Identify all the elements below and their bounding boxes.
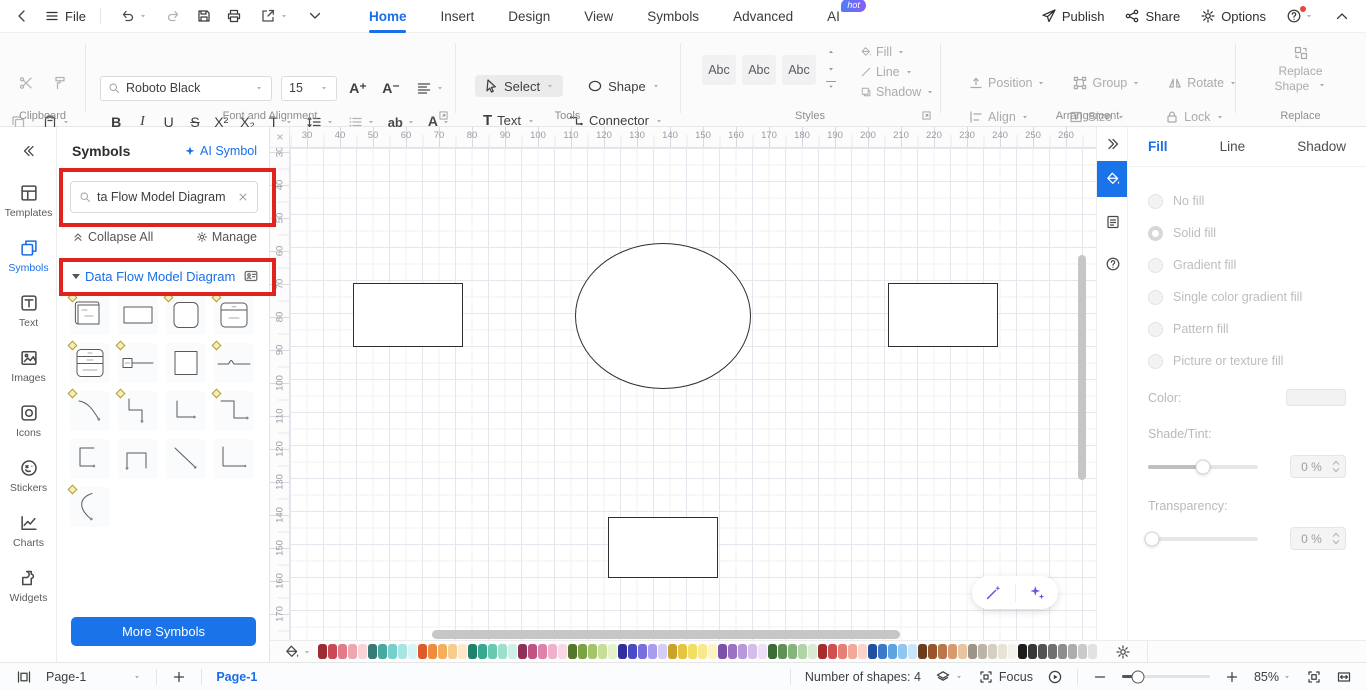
tab-design[interactable]: Design <box>508 0 550 33</box>
export-button[interactable] <box>256 3 293 29</box>
fill-option-pattern-fill[interactable]: Pattern fill <box>1148 313 1346 345</box>
color-swatch[interactable] <box>458 644 467 659</box>
transparency-slider[interactable] <box>1148 537 1258 541</box>
tab-ai[interactable]: AIhot <box>827 0 840 33</box>
ai-sparkles-button[interactable] <box>1027 583 1046 602</box>
divider <box>1147 641 1148 663</box>
radio-button[interactable] <box>1148 226 1163 241</box>
h-ruler-tick: 100 <box>530 130 546 141</box>
styles-scroll-down-icon[interactable] <box>826 64 836 74</box>
color-swatch[interactable] <box>878 644 887 659</box>
color-swatch[interactable] <box>358 644 367 659</box>
radio-button[interactable] <box>1148 354 1163 369</box>
sidebar-item-icons[interactable]: Icons <box>0 393 57 448</box>
color-swatch[interactable] <box>938 644 947 659</box>
color-swatch[interactable] <box>398 644 407 659</box>
position-label: Position <box>988 76 1032 90</box>
color-swatches <box>318 644 1097 659</box>
page-select-value: Page-1 <box>46 670 86 684</box>
canvas[interactable]: 3040506070809010011012013014015016017018… <box>270 127 1096 640</box>
format-painter-button[interactable] <box>52 75 68 91</box>
select-tool-button[interactable]: Select <box>475 75 563 97</box>
collapse-all-button[interactable]: Collapse All <box>72 230 153 244</box>
color-swatch[interactable] <box>378 644 387 659</box>
color-swatch[interactable] <box>1088 644 1097 659</box>
sidebar-item-widgets[interactable]: Widgets <box>0 558 57 613</box>
symbol-u-arrow[interactable] <box>118 439 158 479</box>
color-swatch[interactable] <box>1008 644 1017 659</box>
font-size-select[interactable]: 15 <box>281 76 337 101</box>
rotate-label: Rotate <box>1187 76 1224 90</box>
tools-section-label: Tools <box>455 110 680 122</box>
style-preset-2[interactable]: Abc <box>742 55 776 85</box>
select-label: Select <box>504 79 540 94</box>
help-button[interactable] <box>1286 8 1314 24</box>
color-swatch[interactable] <box>988 644 997 659</box>
tab-view[interactable]: View <box>584 0 613 33</box>
options-label: Options <box>1221 9 1266 24</box>
fill-option-picture-or-texture-fill[interactable]: Picture or texture fill <box>1148 345 1346 377</box>
color-swatch[interactable] <box>778 644 787 659</box>
color-swatch[interactable] <box>548 644 557 659</box>
color-swatch[interactable] <box>818 644 827 659</box>
text-align-button[interactable] <box>412 75 449 101</box>
page-panel-icon[interactable] <box>16 669 32 685</box>
symbol-z-arrow[interactable] <box>214 391 254 431</box>
magic-wand-button[interactable] <box>984 583 1003 602</box>
quick-fill-button[interactable] <box>284 644 312 660</box>
divider <box>156 669 157 685</box>
symbol-search-input[interactable] <box>97 190 231 204</box>
canvas-shape-ellipse-2[interactable] <box>575 243 751 389</box>
zoom-out-button[interactable] <box>1092 669 1108 685</box>
sidebar-item-label: Charts <box>13 537 44 549</box>
color-swatch[interactable] <box>708 644 717 659</box>
redo-button[interactable] <box>166 8 182 24</box>
templates-icon <box>19 183 39 203</box>
collapse-all-label: Collapse All <box>88 230 153 244</box>
sidebar-item-label: Images <box>11 372 45 384</box>
color-swatch[interactable] <box>648 644 657 659</box>
panel-tabs: FillLineShadow <box>1128 127 1366 167</box>
help-caret-icon <box>1304 11 1314 21</box>
tab-label: View <box>584 9 613 24</box>
color-swatch[interactable] <box>418 644 427 659</box>
color-swatch[interactable] <box>558 644 567 659</box>
color-swatch[interactable] <box>798 644 807 659</box>
radio-button[interactable] <box>1148 258 1163 273</box>
palette-settings-gear-icon[interactable] <box>1115 644 1131 660</box>
color-swatch[interactable] <box>978 644 987 659</box>
search-icon <box>108 82 120 94</box>
tab-label: Symbols <box>647 9 699 24</box>
cut-button[interactable] <box>18 75 34 91</box>
font-section: Roboto Black 15 A⁺ A⁻ B I U S X <box>85 33 455 127</box>
ai-symbol-label: AI Symbol <box>200 144 257 158</box>
color-swatch[interactable] <box>498 644 507 659</box>
shade-tint-value: 0 % <box>1291 460 1332 474</box>
symbol-roundsq[interactable] <box>166 295 206 335</box>
color-swatch[interactable] <box>768 644 777 659</box>
save-button[interactable] <box>196 8 212 24</box>
text-tool-icon <box>19 293 39 313</box>
back-chevron-icon[interactable] <box>14 8 30 24</box>
position-caret-icon <box>1036 78 1046 88</box>
options-button[interactable]: Options <box>1200 8 1266 24</box>
fill-option-label: Pattern fill <box>1173 322 1229 336</box>
color-swatch[interactable] <box>688 644 697 659</box>
h-ruler-tick: 30 <box>302 130 313 141</box>
horizontal-scrollbar[interactable] <box>432 630 900 639</box>
group-icon <box>1072 75 1088 91</box>
color-swatch[interactable] <box>1038 644 1047 659</box>
sidebar-item-label: Widgets <box>10 592 48 604</box>
page-tab-active[interactable]: Page-1 <box>216 670 257 684</box>
styles-dialog-launcher-icon[interactable] <box>921 110 932 121</box>
transparency-down-icon[interactable] <box>1332 539 1340 545</box>
transparency-slider-handle[interactable] <box>1145 531 1160 546</box>
replace-section: Replace Shape Replace <box>1235 33 1366 127</box>
fill-label: Fill <box>876 45 892 59</box>
h-ruler-tick: 190 <box>827 130 843 141</box>
tab-label: Insert <box>440 9 474 24</box>
symbol-tagline[interactable] <box>118 343 158 383</box>
color-swatch[interactable] <box>1028 644 1037 659</box>
color-swatch[interactable] <box>608 644 617 659</box>
symbol-diag-line[interactable] <box>166 439 206 479</box>
zoom-slider[interactable] <box>1122 675 1210 678</box>
color-swatch[interactable] <box>718 644 727 659</box>
symbol-library-title: Data Flow Model Diagram <box>85 269 238 284</box>
rail-items: TemplatesSymbolsTextImagesIconsStickersC… <box>0 173 57 613</box>
tab-advanced[interactable]: Advanced <box>733 0 793 33</box>
color-swatch[interactable] <box>638 644 647 659</box>
tab-label: AI <box>827 9 840 24</box>
styles-scroll-up-icon[interactable] <box>826 47 836 57</box>
fill-option-label: No fill <box>1173 194 1204 208</box>
print-button[interactable] <box>226 8 242 24</box>
symbol-entity1[interactable] <box>214 295 254 335</box>
symbol-square[interactable] <box>166 343 206 383</box>
tab-home[interactable]: Home <box>369 0 407 33</box>
shade-down-icon[interactable] <box>1332 467 1340 473</box>
font-size-value: 15 <box>289 81 313 95</box>
color-swatch[interactable] <box>518 644 527 659</box>
symbol-search-box <box>70 181 258 213</box>
color-swatch[interactable] <box>758 644 767 659</box>
font-family-select[interactable]: Roboto Black <box>100 76 272 101</box>
group-label: Group <box>1092 76 1127 90</box>
color-swatch[interactable] <box>1018 644 1027 659</box>
fill-option-solid-fill[interactable]: Solid fill <box>1148 217 1346 249</box>
fit-width-button[interactable] <box>1336 669 1352 685</box>
symbol-elbow-arrow[interactable] <box>118 391 158 431</box>
color-swatch[interactable] <box>588 644 597 659</box>
color-swatch[interactable] <box>1058 644 1067 659</box>
color-swatch[interactable] <box>728 644 737 659</box>
page-select-dropdown[interactable]: Page-1 <box>46 670 142 684</box>
fill-panel-button[interactable] <box>1097 161 1128 197</box>
color-swatch[interactable] <box>438 644 447 659</box>
color-swatch[interactable] <box>538 644 547 659</box>
group-caret-icon <box>1131 78 1141 88</box>
rotate-dropdown[interactable]: Rotate <box>1167 75 1238 91</box>
section-expand-triangle-icon <box>72 274 80 279</box>
styles-section-label: Styles <box>680 110 940 122</box>
sidebar-item-text[interactable]: Text <box>0 283 57 338</box>
vertical-scrollbar[interactable] <box>1078 255 1086 480</box>
canvas-shape-rect-1[interactable] <box>353 283 463 347</box>
h-ruler-tick: 230 <box>959 130 975 141</box>
color-swatch[interactable] <box>338 644 347 659</box>
shade-up-icon[interactable] <box>1332 460 1340 466</box>
radio-button[interactable] <box>1148 322 1163 337</box>
align-text-icon <box>416 80 432 96</box>
line-label: Line <box>876 65 900 79</box>
sidebar-item-images[interactable]: Images <box>0 338 57 393</box>
sidebar-item-symbols[interactable]: Symbols <box>0 228 57 283</box>
color-swatch[interactable] <box>388 644 397 659</box>
tab-label: Design <box>508 9 550 24</box>
color-swatch[interactable] <box>348 644 357 659</box>
focus-button[interactable]: Focus <box>978 669 1033 685</box>
radio-button[interactable] <box>1148 194 1163 209</box>
color-swatch[interactable] <box>898 644 907 659</box>
symbol-curve-arrow[interactable] <box>70 391 110 431</box>
symbol-wave[interactable] <box>214 343 254 383</box>
presentation-play-button[interactable] <box>1047 669 1063 685</box>
color-swatch[interactable] <box>468 644 477 659</box>
color-swatch[interactable] <box>1068 644 1077 659</box>
style-preset-1[interactable]: Abc <box>702 55 736 85</box>
main-tabs: HomeInsertDesignViewSymbolsAdvancedAIhot <box>369 0 840 33</box>
tab-symbols[interactable]: Symbols <box>647 0 699 33</box>
style-preset-3[interactable]: Abc <box>782 55 816 85</box>
color-swatch[interactable] <box>678 644 687 659</box>
color-swatch[interactable] <box>788 644 797 659</box>
color-swatch[interactable] <box>918 644 927 659</box>
more-symbols-button[interactable]: More Symbols <box>71 617 256 646</box>
titlebar: File HomeInsertDesignViewSymbolsAdvanced… <box>0 0 1366 33</box>
color-swatch[interactable] <box>408 644 417 659</box>
color-swatch[interactable] <box>1286 389 1346 406</box>
shade-tint-spinner[interactable]: 0 % <box>1290 455 1346 478</box>
panel-tab-fill[interactable]: Fill <box>1148 139 1168 154</box>
share-label: Share <box>1145 9 1180 24</box>
library-card-icon[interactable] <box>243 268 259 284</box>
v-ruler-tick: 70 <box>275 279 286 290</box>
shade-slider-handle[interactable] <box>1196 459 1211 474</box>
color-swatch[interactable] <box>1048 644 1057 659</box>
tab-insert[interactable]: Insert <box>440 0 474 33</box>
manage-button[interactable]: Manage <box>196 230 257 244</box>
sidebar-item-label: Text <box>19 317 38 329</box>
undo-caret-icon <box>138 11 148 21</box>
color-swatch[interactable] <box>528 644 537 659</box>
symbol-process3d[interactable] <box>70 295 110 335</box>
color-swatch[interactable] <box>808 644 817 659</box>
sparkle-icon <box>184 145 196 157</box>
symbol-arc[interactable] <box>70 487 110 527</box>
page-settings-button[interactable] <box>1097 205 1128 239</box>
sidebar-item-stickers[interactable]: Stickers <box>0 448 57 503</box>
file-menu[interactable]: File <box>44 8 86 24</box>
increase-font-button[interactable]: A⁺ <box>346 76 370 100</box>
zoom-slider-handle[interactable] <box>1131 670 1144 683</box>
clear-search-icon[interactable] <box>237 191 249 203</box>
tab-label: Advanced <box>733 9 793 24</box>
divider <box>790 669 791 685</box>
images-icon <box>19 348 39 368</box>
radio-button[interactable] <box>1148 290 1163 305</box>
color-swatch[interactable] <box>748 644 757 659</box>
color-swatch[interactable] <box>738 644 747 659</box>
v-ruler-tick: 90 <box>275 345 286 356</box>
color-swatch[interactable] <box>828 644 837 659</box>
color-swatch[interactable] <box>598 644 607 659</box>
panel-help-button[interactable] <box>1097 247 1128 281</box>
publish-button[interactable]: Publish <box>1041 8 1105 24</box>
color-swatch[interactable] <box>488 644 497 659</box>
color-swatch[interactable] <box>578 644 587 659</box>
share-button[interactable]: Share <box>1124 8 1180 24</box>
shadow-dropdown[interactable]: Shadow <box>860 85 935 99</box>
color-swatch[interactable] <box>698 644 707 659</box>
replace-shape-button[interactable]: Replace Shape <box>1235 45 1366 94</box>
widgets-icon <box>19 568 39 588</box>
styles-more-icon[interactable] <box>826 81 836 91</box>
zoom-level-dropdown[interactable]: 85% <box>1254 670 1292 684</box>
color-swatch[interactable] <box>958 644 967 659</box>
color-swatch[interactable] <box>508 644 517 659</box>
undo-button[interactable] <box>115 3 152 29</box>
collapse-ribbon-icon[interactable] <box>307 8 323 24</box>
clipboard-section-label: Clipboard <box>0 110 85 122</box>
color-swatch[interactable] <box>668 644 677 659</box>
position-dropdown[interactable]: Position <box>968 75 1046 91</box>
layers-button[interactable] <box>935 669 964 685</box>
fill-option-gradient-fill[interactable]: Gradient fill <box>1148 249 1346 281</box>
font-family-caret-icon <box>254 83 264 93</box>
left-rail: TemplatesSymbolsTextImagesIconsStickersC… <box>0 127 57 662</box>
color-swatch[interactable] <box>998 644 1007 659</box>
color-swatch[interactable] <box>568 644 577 659</box>
group-dropdown[interactable]: Group <box>1072 75 1141 91</box>
v-ruler-tick: 100 <box>275 375 286 391</box>
shadow-label: Shadow <box>876 85 921 99</box>
panel-tab-shadow[interactable]: Shadow <box>1297 139 1346 154</box>
color-swatch[interactable] <box>848 644 857 659</box>
h-ruler-tick: 180 <box>794 130 810 141</box>
export-icon <box>260 8 276 24</box>
v-ruler-tick: 170 <box>275 606 286 622</box>
add-page-button[interactable] <box>171 669 187 685</box>
zoom-level-value: 85% <box>1254 670 1279 684</box>
quick-fill-caret-icon <box>302 647 312 657</box>
ai-symbol-link[interactable]: AI Symbol <box>184 144 257 158</box>
fill-option-no-fill[interactable]: No fill <box>1148 185 1346 217</box>
symbol-rect[interactable] <box>118 295 158 335</box>
sidebar-item-templates[interactable]: Templates <box>0 173 57 228</box>
symbol-entity2[interactable] <box>70 343 110 383</box>
color-swatch[interactable] <box>318 644 327 659</box>
color-palette-bar <box>270 640 1366 662</box>
sidebar-item-charts[interactable]: Charts <box>0 503 57 558</box>
v-ruler-tick: 110 <box>275 408 286 423</box>
shape-tool-button[interactable]: Shape <box>579 75 669 97</box>
h-ruler-tick: 130 <box>629 130 645 141</box>
color-swatch[interactable] <box>628 644 637 659</box>
replace-caret-icon <box>1317 80 1327 90</box>
v-ruler-tick: 30 <box>275 147 286 158</box>
sidebar-item-label: Symbols <box>8 262 48 274</box>
h-ruler-tick: 80 <box>467 130 478 141</box>
zoom-in-button[interactable] <box>1224 669 1240 685</box>
transparency-spinner[interactable]: 0 % <box>1290 527 1346 550</box>
color-swatch[interactable] <box>868 644 877 659</box>
shade-tint-slider[interactable] <box>1148 465 1258 469</box>
decrease-font-button[interactable]: A⁻ <box>379 76 403 100</box>
symbol-library-header[interactable]: Data Flow Model Diagram <box>72 268 259 284</box>
line-dropdown[interactable]: Line <box>860 65 935 79</box>
transparency-up-icon[interactable] <box>1332 532 1340 538</box>
color-swatch[interactable] <box>968 644 977 659</box>
expand-panel-button[interactable] <box>1097 127 1128 161</box>
publish-icon <box>1041 8 1057 24</box>
shape-count: Number of shapes: 4 <box>805 670 921 684</box>
fill-option-single-color-gradient-fill[interactable]: Single color gradient fill <box>1148 281 1346 313</box>
h-ruler-tick: 210 <box>893 130 909 141</box>
color-swatch[interactable] <box>908 644 917 659</box>
color-swatch[interactable] <box>948 644 957 659</box>
color-swatch[interactable] <box>838 644 847 659</box>
help-circle-icon <box>1105 256 1121 272</box>
canvas-shape-rect-4[interactable] <box>608 517 718 578</box>
color-swatch[interactable] <box>428 644 437 659</box>
fit-screen-button[interactable] <box>1306 669 1322 685</box>
color-swatch[interactable] <box>478 644 487 659</box>
symbol-l-arrow[interactable] <box>166 391 206 431</box>
collapse-titlebar-icon[interactable] <box>1334 8 1350 24</box>
color-swatch[interactable] <box>1078 644 1087 659</box>
publish-label: Publish <box>1062 9 1105 24</box>
symbol-c-arrow[interactable] <box>70 439 110 479</box>
color-swatch[interactable] <box>858 644 867 659</box>
rotate-icon <box>1167 75 1183 91</box>
font-dialog-launcher-icon[interactable] <box>438 110 449 121</box>
divider <box>100 8 101 24</box>
h-ruler-tick: 50 <box>368 130 379 141</box>
symbol-l-shape[interactable] <box>214 439 254 479</box>
canvas-shape-rect-3[interactable] <box>888 283 998 347</box>
icons-tool-icon <box>19 403 39 423</box>
color-swatch[interactable] <box>368 644 377 659</box>
color-swatch[interactable] <box>888 644 897 659</box>
color-swatch[interactable] <box>328 644 337 659</box>
app-window: File HomeInsertDesignViewSymbolsAdvanced… <box>0 0 1366 690</box>
collapse-panel-icon[interactable] <box>21 143 37 159</box>
v-ruler-tick: 80 <box>275 312 286 323</box>
symbols-panel-title: Symbols <box>72 143 130 159</box>
color-swatch[interactable] <box>448 644 457 659</box>
fill-dropdown[interactable]: Fill <box>860 45 935 59</box>
color-swatch[interactable] <box>928 644 937 659</box>
h-ruler-tick: 90 <box>500 130 511 141</box>
panel-tab-line[interactable]: Line <box>1220 139 1246 154</box>
color-swatch[interactable] <box>658 644 667 659</box>
h-ruler-tick: 60 <box>401 130 412 141</box>
color-swatch[interactable] <box>618 644 627 659</box>
